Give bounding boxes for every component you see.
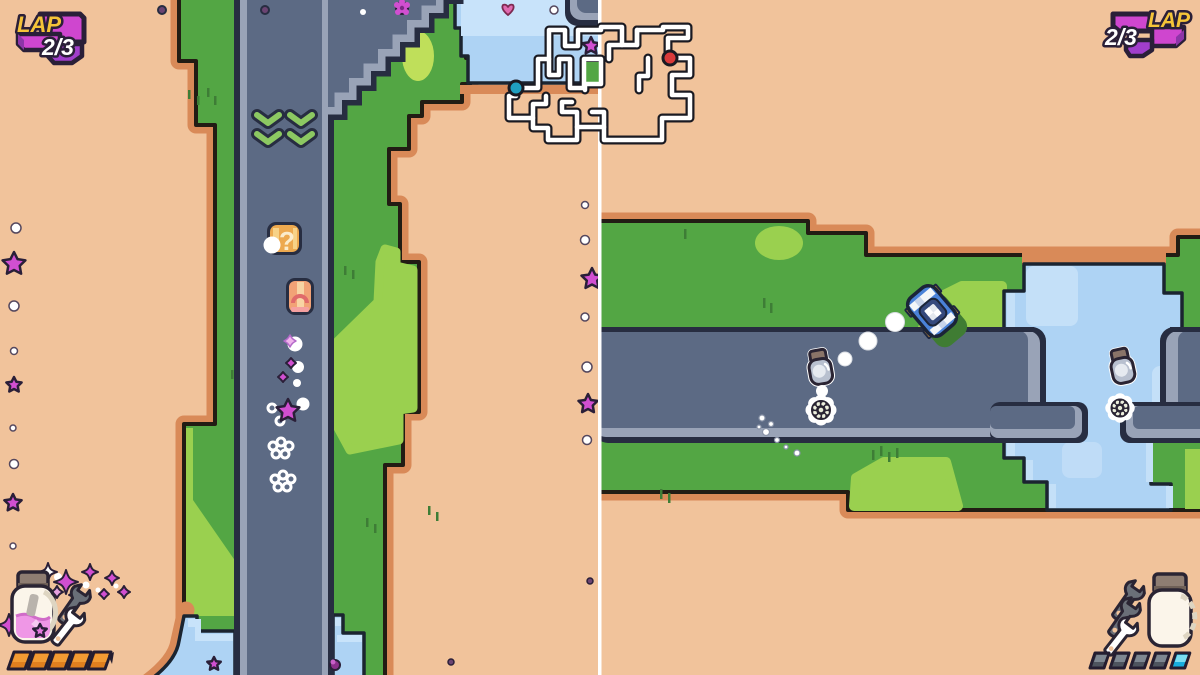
svg-text:2/3: 2/3: [41, 34, 74, 60]
svg-text:2/3: 2/3: [1104, 24, 1137, 50]
svg-text:?: ?: [279, 226, 295, 256]
svg-text:LAP: LAP: [1148, 9, 1191, 32]
